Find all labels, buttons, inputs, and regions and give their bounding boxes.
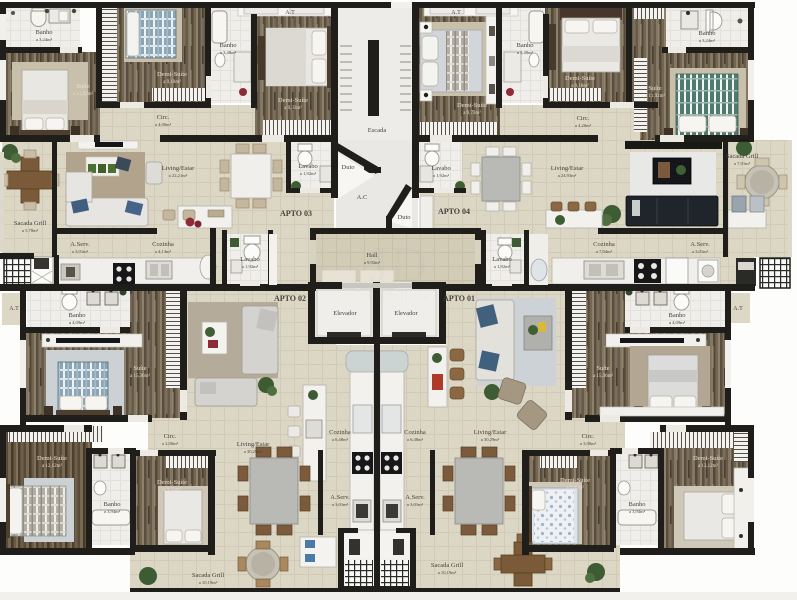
svg-text:JD: JD (369, 237, 427, 294)
svg-text:Circ.: Circ. (164, 433, 177, 440)
svg-text:A.Serv.: A.Serv. (690, 241, 710, 248)
svg-text:Living/Estar: Living/Estar (237, 441, 270, 448)
svg-text:Elevador: Elevador (394, 310, 418, 317)
svg-text:Banho: Banho (517, 42, 534, 49)
svg-text:Suíte: Suíte (648, 85, 661, 92)
svg-text:Banho: Banho (104, 501, 121, 508)
svg-text:Lavabo: Lavabo (492, 256, 512, 263)
svg-text:Living/Estar: Living/Estar (474, 429, 507, 436)
svg-text:Demi-Suíte: Demi-Suíte (457, 102, 487, 109)
svg-text:Cozinha: Cozinha (329, 429, 351, 436)
svg-text:A.Serv.: A.Serv. (70, 241, 90, 248)
svg-text:Demi-Suíte: Demi-Suíte (37, 455, 67, 462)
svg-text:Elevador: Elevador (333, 310, 357, 317)
svg-text:Cozinha: Cozinha (152, 241, 174, 248)
svg-text:Banho: Banho (220, 42, 237, 49)
svg-text:Suíte: Suíte (76, 83, 89, 90)
svg-text:Duto: Duto (342, 164, 355, 171)
svg-text:Banho: Banho (36, 29, 53, 36)
svg-text:A.C: A.C (357, 194, 368, 201)
svg-text:Living/Estar: Living/Estar (551, 165, 584, 172)
svg-text:a 12,12m²: a 12,12m² (42, 463, 63, 469)
svg-text:Suíte: Suíte (596, 365, 609, 372)
svg-text:Demi-Suíte: Demi-Suíte (565, 75, 595, 82)
svg-text:Circ.: Circ. (582, 433, 595, 440)
svg-text:Demi-Suíte: Demi-Suíte (157, 479, 187, 486)
svg-text:Duto: Duto (398, 214, 411, 221)
svg-text:Cozinha: Cozinha (593, 241, 615, 248)
svg-text:Sacada Grill: Sacada Grill (14, 220, 47, 227)
svg-text:A.Serv.: A.Serv. (405, 494, 425, 501)
svg-text:Banho: Banho (669, 312, 686, 319)
svg-text:Banho: Banho (699, 30, 716, 37)
svg-text:A.T: A.T (451, 10, 461, 16)
svg-text:A.Serv.: A.Serv. (330, 494, 350, 501)
svg-text:Lavabo: Lavabo (240, 256, 260, 263)
svg-text:APTO 02: APTO 02 (274, 294, 306, 303)
svg-text:Sacada Grill: Sacada Grill (726, 153, 759, 160)
svg-text:APTO 03: APTO 03 (280, 209, 312, 218)
svg-text:Cozinha: Cozinha (404, 429, 426, 436)
svg-text:Circ.: Circ. (577, 115, 590, 122)
svg-text:A.T: A.T (9, 306, 19, 312)
svg-text:Lavabo: Lavabo (298, 163, 318, 170)
svg-text:a 13,12m²: a 13,12m² (698, 463, 719, 469)
svg-text:Hall: Hall (366, 252, 377, 259)
svg-text:APTO 01: APTO 01 (443, 294, 475, 303)
svg-text:Escada: Escada (368, 127, 387, 134)
svg-text:Lavabo: Lavabo (431, 165, 451, 172)
svg-text:Sacada Grill: Sacada Grill (192, 572, 225, 579)
svg-text:a 11,92m²: a 11,92m² (645, 93, 665, 99)
svg-text:APTO 04: APTO 04 (438, 207, 470, 216)
svg-text:Sacada Grill: Sacada Grill (431, 562, 464, 569)
svg-text:A.T: A.T (285, 10, 295, 16)
svg-text:Suíte: Suíte (133, 365, 146, 372)
svg-text:a 15,36m²: a 15,36m² (593, 373, 614, 379)
svg-text:a 9,73m²: a 9,73m² (463, 110, 481, 116)
svg-text:Banho: Banho (629, 501, 646, 508)
svg-text:imobiliária: imobiliária (367, 289, 429, 304)
svg-text:Demi-Suíte: Demi-Suíte (560, 477, 590, 484)
svg-text:Demi-Suíte: Demi-Suíte (278, 97, 308, 104)
svg-text:A.T: A.T (733, 306, 743, 312)
svg-text:Circ.: Circ. (157, 114, 170, 121)
svg-text:Demi-Suíte: Demi-Suíte (157, 71, 187, 78)
svg-text:Demi-Suíte: Demi-Suíte (693, 455, 723, 462)
svg-text:a 15,36m²: a 15,36m² (130, 373, 151, 379)
svg-text:a 11,92m²: a 11,92m² (73, 91, 93, 97)
svg-text:a 9,18m²: a 9,18m² (571, 83, 589, 89)
svg-text:a 9,95m²: a 9,95m² (163, 487, 181, 493)
svg-text:a 9,05m²: a 9,05m² (566, 485, 584, 491)
svg-text:a 9,33m²: a 9,33m² (284, 105, 302, 111)
svg-text:Living/Estar: Living/Estar (162, 165, 195, 172)
svg-text:Banho: Banho (69, 312, 86, 319)
svg-text:a 9,18m²: a 9,18m² (163, 79, 181, 85)
